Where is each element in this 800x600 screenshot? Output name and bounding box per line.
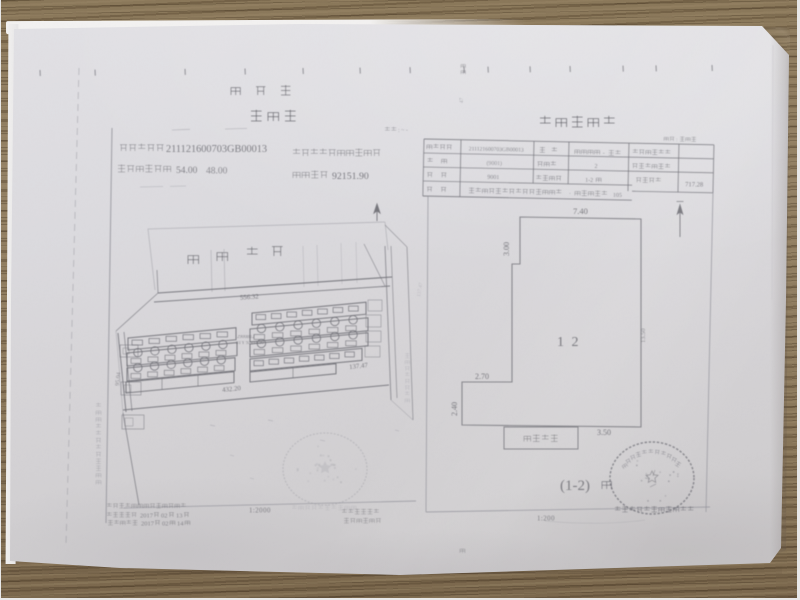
svg-text:2.70: 2.70 (475, 372, 489, 381)
svg-text:13.50: 13.50 (640, 328, 647, 343)
svg-text:8TY 92151.90: 8TY 92151.90 (236, 341, 264, 346)
svg-text:211121600703GB00013: 211121600703GB00013 (469, 146, 524, 153)
svg-text:717.28: 717.28 (685, 181, 704, 188)
svg-text:3.00: 3.00 (502, 242, 511, 256)
svg-text:105: 105 (613, 193, 622, 199)
svg-text:14: 14 (177, 521, 184, 528)
svg-text:47: 47 (459, 97, 465, 103)
svg-text:13: 13 (176, 513, 183, 520)
svg-text:02: 02 (162, 521, 169, 528)
svg-text:(1-2): (1-2) (560, 478, 590, 494)
svg-text:2: 2 (594, 164, 597, 170)
svg-text:2017: 2017 (140, 513, 154, 520)
svg-text:1-2: 1-2 (585, 178, 593, 184)
svg-text:92151.90: 92151.90 (332, 171, 369, 182)
svg-text:-: - (603, 151, 605, 157)
svg-text:2.40: 2.40 (450, 402, 459, 416)
svg-text:556.32: 556.32 (240, 293, 260, 301)
svg-text:(9001): (9001) (486, 160, 502, 167)
svg-text:48.00: 48.00 (206, 167, 228, 177)
svg-text:: ~ -: : ~ - (398, 128, 408, 134)
svg-text:02: 02 (161, 513, 168, 520)
svg-text:1 2: 1 2 (557, 335, 581, 350)
svg-text:211121600703GB00013: 211121600703GB00013 (166, 144, 267, 155)
svg-text:·: · (569, 191, 571, 197)
svg-text:9001: 9001 (487, 175, 499, 181)
svg-text:2900B12: 2900B12 (237, 335, 255, 340)
svg-text:7.40: 7.40 (573, 206, 588, 216)
svg-text:2017: 2017 (141, 521, 155, 528)
svg-text:54.00: 54.00 (176, 166, 198, 176)
svg-text:3.50: 3.50 (597, 428, 611, 437)
svg-text:1:2000: 1:2000 (249, 508, 271, 515)
